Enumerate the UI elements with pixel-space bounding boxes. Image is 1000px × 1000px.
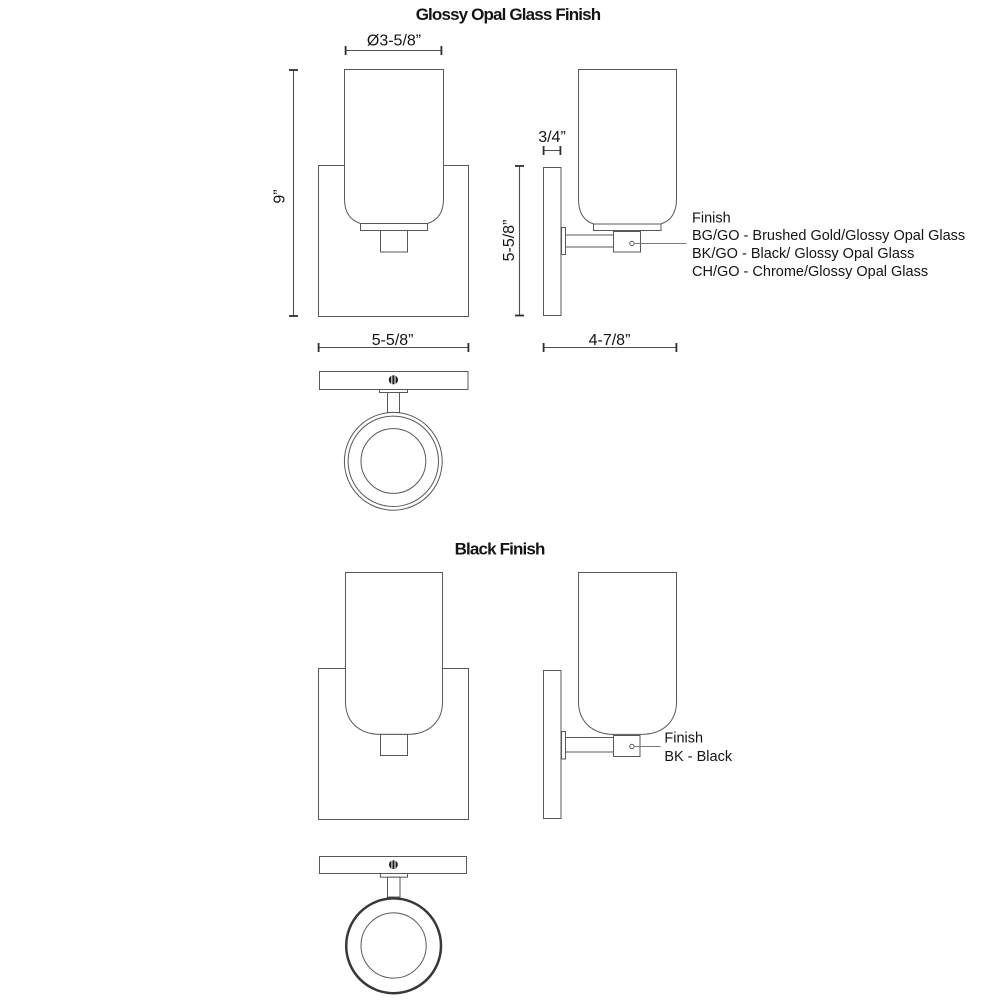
svg-text:CH/GO - Chrome/Glossy Opal Gla: CH/GO - Chrome/Glossy Opal Glass: [692, 264, 928, 280]
svg-text:Ø3-5/8”: Ø3-5/8”: [367, 33, 421, 50]
svg-text:5-5/8”: 5-5/8”: [372, 332, 414, 349]
svg-text:4-7/8”: 4-7/8”: [589, 332, 631, 349]
svg-text:BK - Black: BK - Black: [664, 749, 732, 765]
svg-text:Black Finish: Black Finish: [455, 539, 545, 558]
svg-text:BG/GO - Brushed Gold/Glossy Op: BG/GO - Brushed Gold/Glossy Opal Glass: [692, 228, 965, 244]
svg-text:Glossy Opal Glass Finish: Glossy Opal Glass Finish: [416, 5, 601, 24]
svg-text:5-5/8”: 5-5/8”: [501, 220, 518, 262]
svg-text:Finish: Finish: [664, 731, 703, 747]
svg-text:9”: 9”: [272, 189, 289, 203]
svg-text:BK/GO - Black/ Glossy Opal Gla: BK/GO - Black/ Glossy Opal Glass: [692, 246, 914, 262]
svg-text:3/4”: 3/4”: [538, 129, 566, 146]
svg-text:Finish: Finish: [692, 211, 731, 227]
